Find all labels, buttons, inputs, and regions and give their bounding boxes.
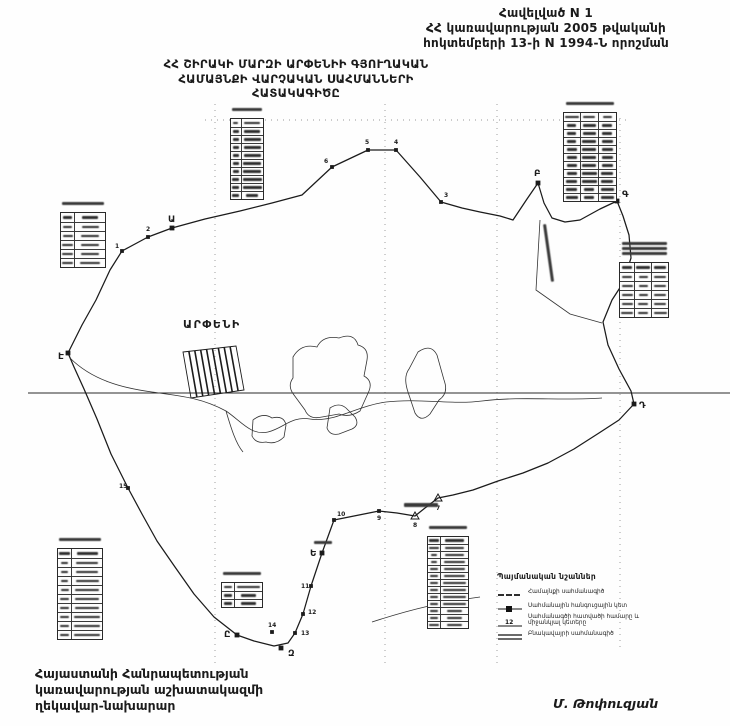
table-cell bbox=[440, 580, 468, 586]
table-row bbox=[428, 621, 468, 628]
table-row bbox=[428, 600, 468, 607]
boundary-point-number: 12 bbox=[308, 609, 316, 616]
illegible-value bbox=[603, 116, 612, 119]
boundary-point-number: 4 bbox=[394, 139, 398, 146]
table-cell bbox=[440, 615, 468, 621]
illegible-value bbox=[636, 266, 650, 269]
illegible-value bbox=[582, 140, 595, 143]
illegible-value bbox=[602, 132, 612, 135]
table-cell bbox=[222, 592, 234, 599]
boundary-node bbox=[170, 226, 175, 231]
table-cell bbox=[428, 587, 440, 593]
illegible-value bbox=[582, 164, 596, 167]
table-cell bbox=[634, 309, 651, 317]
illegible-value bbox=[430, 575, 437, 578]
settlement-outline bbox=[290, 336, 370, 418]
table-header-smudge bbox=[232, 108, 263, 111]
illegible-value bbox=[241, 602, 256, 605]
table-row bbox=[428, 565, 468, 572]
illegible-value bbox=[622, 303, 633, 306]
table-cell bbox=[71, 604, 102, 612]
illegible-value bbox=[77, 552, 98, 555]
table-cell bbox=[231, 152, 241, 159]
illegible-value bbox=[244, 130, 260, 133]
illegible-value bbox=[243, 186, 262, 189]
table-cell bbox=[241, 160, 263, 167]
table-cell bbox=[428, 552, 440, 558]
table-cell bbox=[241, 144, 263, 151]
illegible-value bbox=[567, 156, 577, 159]
settlement-outline bbox=[327, 405, 357, 434]
table-cell bbox=[440, 537, 468, 544]
illegible-value bbox=[447, 610, 462, 613]
settlement-outline bbox=[406, 348, 446, 418]
table-cell bbox=[241, 119, 263, 127]
table-row bbox=[222, 583, 262, 591]
illegible-value bbox=[654, 294, 666, 297]
table-cell bbox=[74, 223, 105, 231]
illegible-value bbox=[622, 276, 633, 279]
illegible-value bbox=[244, 138, 260, 141]
illegible-value bbox=[244, 122, 260, 125]
illegible-value bbox=[82, 226, 99, 229]
table-row bbox=[620, 263, 668, 272]
table-cell bbox=[598, 113, 616, 121]
table-cell bbox=[241, 128, 263, 135]
table-row bbox=[58, 612, 102, 621]
illegible-value bbox=[602, 156, 613, 159]
illegible-value bbox=[622, 285, 633, 288]
illegible-value bbox=[567, 172, 578, 175]
illegible-value bbox=[233, 162, 239, 165]
illegible-value bbox=[74, 616, 99, 619]
boundary-node-letter: Ե bbox=[310, 549, 317, 559]
table-cell bbox=[580, 194, 598, 201]
table-row bbox=[564, 193, 616, 201]
table-cell bbox=[440, 608, 468, 614]
illegible-value bbox=[75, 607, 100, 610]
table-row bbox=[222, 599, 262, 607]
illegible-value bbox=[443, 596, 466, 599]
table-header-smudge bbox=[59, 538, 100, 541]
illegible-value bbox=[63, 226, 73, 229]
table-cell bbox=[241, 184, 263, 191]
table-row bbox=[58, 576, 102, 585]
table-cell bbox=[620, 263, 634, 272]
table-cell bbox=[564, 162, 580, 169]
illegible-value bbox=[567, 132, 576, 135]
table-cell bbox=[634, 300, 651, 308]
signature-line2: կառավարության աշխատակազմի bbox=[35, 682, 263, 698]
table-cell bbox=[564, 154, 580, 161]
table-cell bbox=[61, 213, 74, 222]
illegible-value bbox=[60, 598, 68, 601]
table-cell bbox=[58, 577, 71, 585]
table-row bbox=[564, 161, 616, 169]
illegible-value bbox=[601, 180, 613, 183]
illegible-value bbox=[81, 235, 99, 238]
boundary-point bbox=[439, 200, 443, 204]
illegible-value bbox=[582, 148, 596, 151]
table-row bbox=[58, 594, 102, 603]
boundary-node-letter: Դ bbox=[639, 401, 646, 411]
illegible-value bbox=[74, 634, 101, 637]
table-row bbox=[231, 127, 263, 135]
illegible-value bbox=[583, 124, 596, 127]
illegible-value bbox=[232, 178, 239, 181]
table-row bbox=[231, 151, 263, 159]
table-cell bbox=[564, 186, 580, 193]
table-cell bbox=[598, 162, 616, 169]
table-cell bbox=[564, 130, 580, 137]
table-row bbox=[428, 572, 468, 579]
table-row bbox=[58, 558, 102, 567]
illegible-value bbox=[654, 312, 667, 315]
table-row bbox=[564, 113, 616, 121]
illegible-value bbox=[447, 624, 463, 627]
table-row bbox=[61, 249, 105, 258]
table-cell bbox=[222, 600, 234, 607]
table-row bbox=[564, 121, 616, 129]
boundary-node bbox=[632, 402, 637, 407]
boundary-point bbox=[120, 249, 124, 253]
illegible-value bbox=[59, 552, 71, 555]
boundary-point-number: 10 bbox=[337, 511, 345, 518]
illegible-value bbox=[583, 116, 595, 119]
table-cell bbox=[71, 549, 102, 558]
table-header-smudge bbox=[566, 102, 615, 105]
illegible-value bbox=[445, 539, 464, 542]
table-cell bbox=[71, 577, 102, 585]
table-cell bbox=[651, 273, 668, 281]
illegible-value bbox=[76, 562, 98, 565]
table-cell bbox=[620, 300, 634, 308]
illegible-value bbox=[567, 140, 576, 143]
illegible-value bbox=[74, 625, 100, 628]
legend-item: Բնակավայրի սահմանագիծ bbox=[497, 627, 657, 641]
table-cell bbox=[440, 587, 468, 593]
illegible-value bbox=[431, 561, 438, 564]
table-row bbox=[564, 137, 616, 145]
legend: Պայմանական նշաններ Համայնքի սահմանագիծՍա… bbox=[497, 572, 657, 641]
table-cell bbox=[620, 273, 634, 281]
table-cell bbox=[580, 146, 598, 153]
table-cell bbox=[440, 545, 468, 551]
table-row bbox=[428, 558, 468, 565]
boundary-point-number: 1 bbox=[115, 243, 119, 250]
table-cell bbox=[61, 232, 74, 240]
boundary-point bbox=[330, 165, 334, 169]
table-cell bbox=[61, 241, 74, 249]
table-cell bbox=[74, 250, 105, 258]
illegible-value bbox=[639, 276, 648, 279]
table-cell bbox=[580, 178, 598, 185]
table-row bbox=[231, 175, 263, 183]
illegible-value bbox=[638, 303, 648, 306]
illegible-value bbox=[430, 596, 438, 599]
table-cell bbox=[231, 119, 241, 127]
table-row bbox=[58, 567, 102, 576]
table-row bbox=[58, 585, 102, 594]
table-row bbox=[564, 129, 616, 137]
table-cell bbox=[71, 622, 102, 630]
illegible-value bbox=[602, 140, 612, 143]
illegible-value bbox=[445, 547, 464, 550]
table-cell bbox=[58, 622, 71, 630]
table-row bbox=[564, 145, 616, 153]
table-cell bbox=[580, 138, 598, 145]
boundary-point bbox=[270, 630, 274, 634]
illegible-value bbox=[60, 625, 69, 628]
table-cell bbox=[231, 168, 241, 175]
illegible-value bbox=[233, 122, 238, 125]
table-row bbox=[620, 272, 668, 281]
legend-item: Համայնքի սահմանագիծ bbox=[497, 585, 657, 599]
table-row bbox=[428, 586, 468, 593]
table-row bbox=[428, 551, 468, 558]
table-cell bbox=[580, 130, 598, 137]
table-header-smudge bbox=[223, 572, 261, 575]
table-cell bbox=[598, 138, 616, 145]
table-cell bbox=[580, 186, 598, 193]
boundary-node-point-icon bbox=[497, 600, 523, 612]
table-row bbox=[61, 240, 105, 249]
illegible-value bbox=[60, 607, 69, 610]
coordinate-table bbox=[230, 118, 264, 200]
illegible-value bbox=[639, 294, 648, 297]
table-cell bbox=[61, 259, 74, 267]
illegible-value bbox=[443, 589, 466, 592]
table-cell bbox=[231, 176, 241, 183]
boundary-node bbox=[66, 351, 71, 356]
illegible-value bbox=[443, 603, 467, 606]
illegible-value bbox=[602, 164, 614, 167]
table-cell bbox=[598, 146, 616, 153]
table-row bbox=[620, 290, 668, 299]
boundary-point bbox=[293, 631, 297, 635]
table-cell bbox=[580, 113, 598, 121]
table-cell bbox=[428, 601, 440, 607]
boundary-point-number: 6 bbox=[324, 158, 328, 165]
illegible-value bbox=[60, 616, 69, 619]
table-cell bbox=[620, 291, 634, 299]
illegible-value bbox=[60, 634, 69, 637]
illegible-value bbox=[224, 586, 232, 589]
illegible-value bbox=[444, 561, 465, 564]
illegible-value bbox=[654, 303, 667, 306]
table-cell bbox=[440, 601, 468, 607]
table-cell bbox=[620, 309, 634, 317]
boundary-point bbox=[394, 148, 398, 152]
table-cell bbox=[428, 622, 440, 628]
table-header-smudge bbox=[622, 252, 667, 255]
illegible-value bbox=[61, 571, 69, 574]
table-row bbox=[428, 544, 468, 551]
legend-item-label: Սահմանային հանգուցային կետ bbox=[528, 603, 627, 609]
table-header-smudge bbox=[62, 202, 103, 205]
table-header-smudge bbox=[622, 247, 667, 250]
table-cell bbox=[231, 192, 241, 199]
legend-item-label: Համայնքի սահմանագիծ bbox=[528, 589, 604, 595]
legend-items: Համայնքի սահմանագիծՍահմանային հանգուցայի… bbox=[497, 585, 657, 641]
table-cell bbox=[580, 122, 598, 129]
table-cell bbox=[440, 566, 468, 572]
legend-item: Սահմանային հանգուցային կետ bbox=[497, 599, 657, 613]
table-cell bbox=[428, 615, 440, 621]
legend-item-label: Բնակավայրի սահմանագիծ bbox=[528, 631, 614, 637]
table-cell bbox=[440, 594, 468, 600]
illegible-value bbox=[601, 188, 614, 191]
table-cell bbox=[564, 178, 580, 185]
illegible-value bbox=[445, 554, 465, 557]
illegible-value bbox=[431, 554, 438, 557]
table-row bbox=[61, 222, 105, 231]
illegible-value bbox=[447, 617, 462, 620]
table-row bbox=[61, 213, 105, 222]
boundary-point-number: 3 bbox=[444, 192, 448, 199]
table-row bbox=[428, 579, 468, 586]
table-row bbox=[231, 143, 263, 151]
table-cell bbox=[651, 309, 668, 317]
table-cell bbox=[241, 192, 263, 199]
coordinate-table bbox=[60, 212, 106, 268]
illegible-value bbox=[80, 262, 99, 265]
table-cell bbox=[598, 186, 616, 193]
illegible-value bbox=[601, 196, 614, 199]
table-cell bbox=[74, 259, 105, 267]
table-cell bbox=[580, 162, 598, 169]
boundary-point bbox=[309, 584, 313, 588]
illegible-value bbox=[567, 124, 576, 127]
table-cell bbox=[598, 154, 616, 161]
table-cell bbox=[231, 136, 241, 143]
illegible-value bbox=[430, 603, 438, 606]
illegible-value bbox=[224, 602, 233, 605]
table-cell bbox=[428, 566, 440, 572]
boundary-node bbox=[536, 181, 541, 186]
boundary-node-letter: Գ bbox=[622, 190, 629, 200]
boundary-point-number: 11 bbox=[301, 583, 309, 590]
triangle-point-number: 8 bbox=[413, 522, 417, 529]
illegible-value bbox=[430, 617, 439, 620]
table-cell bbox=[71, 631, 102, 639]
table-row bbox=[428, 614, 468, 621]
table-cell bbox=[241, 176, 263, 183]
table-row bbox=[564, 177, 616, 185]
illegible-value bbox=[246, 194, 258, 197]
illegible-value bbox=[233, 146, 239, 149]
illegible-value bbox=[638, 312, 648, 315]
table-header-smudge bbox=[429, 526, 467, 529]
illegible-value bbox=[81, 244, 99, 247]
illegible-value bbox=[75, 598, 99, 601]
legend-title: Պայմանական նշաններ bbox=[497, 572, 657, 581]
illegible-value bbox=[82, 216, 98, 219]
table-row bbox=[61, 258, 105, 267]
table-cell bbox=[598, 170, 616, 177]
table-cell bbox=[231, 160, 241, 167]
illegible-value bbox=[430, 568, 437, 571]
boundary-node-letter: Ա bbox=[168, 215, 175, 225]
illegible-value bbox=[444, 568, 465, 571]
settlement-label: ԱՐՓԵՆԻ bbox=[183, 318, 241, 331]
illegible-value bbox=[244, 154, 261, 157]
table-row bbox=[231, 167, 263, 175]
table-cell bbox=[71, 595, 102, 603]
table-cell bbox=[634, 282, 651, 290]
boundary-point-number: 2 bbox=[146, 226, 150, 233]
table-cell bbox=[234, 592, 262, 599]
illegible-value bbox=[76, 580, 99, 583]
table-cell bbox=[58, 604, 71, 612]
illegible-value bbox=[566, 188, 577, 191]
signer-name: Մ. Թոփուզյան bbox=[553, 696, 658, 711]
illegible-value bbox=[430, 589, 438, 592]
illegible-value bbox=[61, 580, 69, 583]
illegible-value bbox=[63, 235, 73, 238]
table-cell bbox=[74, 213, 105, 222]
table-cell bbox=[71, 613, 102, 621]
boundary-point-number: 14 bbox=[268, 622, 276, 629]
table-cell bbox=[428, 559, 440, 565]
illegible-value bbox=[62, 262, 73, 265]
illegible-value bbox=[582, 156, 596, 159]
table-cell bbox=[651, 300, 668, 308]
illegible-value bbox=[444, 575, 466, 578]
table-row bbox=[428, 593, 468, 600]
illegible-value bbox=[233, 138, 239, 141]
illegible-value bbox=[233, 154, 239, 157]
table-cell bbox=[580, 170, 598, 177]
table-row bbox=[231, 159, 263, 167]
illegible-value bbox=[565, 116, 579, 119]
boundary-point-number: 9 bbox=[377, 515, 381, 522]
table-row bbox=[222, 591, 262, 599]
table-cell bbox=[620, 282, 634, 290]
illegible-value bbox=[584, 188, 593, 191]
illegible-value bbox=[567, 164, 577, 167]
boundary-point-number: 15 bbox=[119, 483, 127, 490]
table-cell bbox=[71, 568, 102, 576]
table-cell bbox=[440, 552, 468, 558]
illegible-value bbox=[639, 285, 648, 288]
illegible-value bbox=[443, 582, 465, 585]
illegible-label bbox=[314, 541, 332, 544]
illegible-value bbox=[429, 547, 440, 550]
illegible-value bbox=[237, 586, 261, 589]
illegible-value bbox=[584, 196, 594, 199]
table-cell bbox=[428, 537, 440, 544]
table-cell bbox=[231, 144, 241, 151]
table-cell bbox=[651, 291, 668, 299]
table-row bbox=[231, 183, 263, 191]
boundary-node-letter: Զ bbox=[288, 649, 295, 659]
table-cell bbox=[598, 194, 616, 201]
illegible-value bbox=[602, 148, 613, 151]
illegible-value bbox=[224, 594, 233, 597]
table-cell bbox=[598, 178, 616, 185]
table-cell bbox=[231, 184, 241, 191]
illegible-value bbox=[654, 276, 666, 279]
illegible-value bbox=[601, 172, 613, 175]
illegible-value bbox=[582, 180, 597, 183]
table-cell bbox=[634, 273, 651, 281]
table-row bbox=[428, 607, 468, 614]
table-cell bbox=[440, 573, 468, 579]
table-cell bbox=[234, 583, 262, 591]
illegible-value bbox=[567, 148, 577, 151]
illegible-value bbox=[566, 180, 577, 183]
